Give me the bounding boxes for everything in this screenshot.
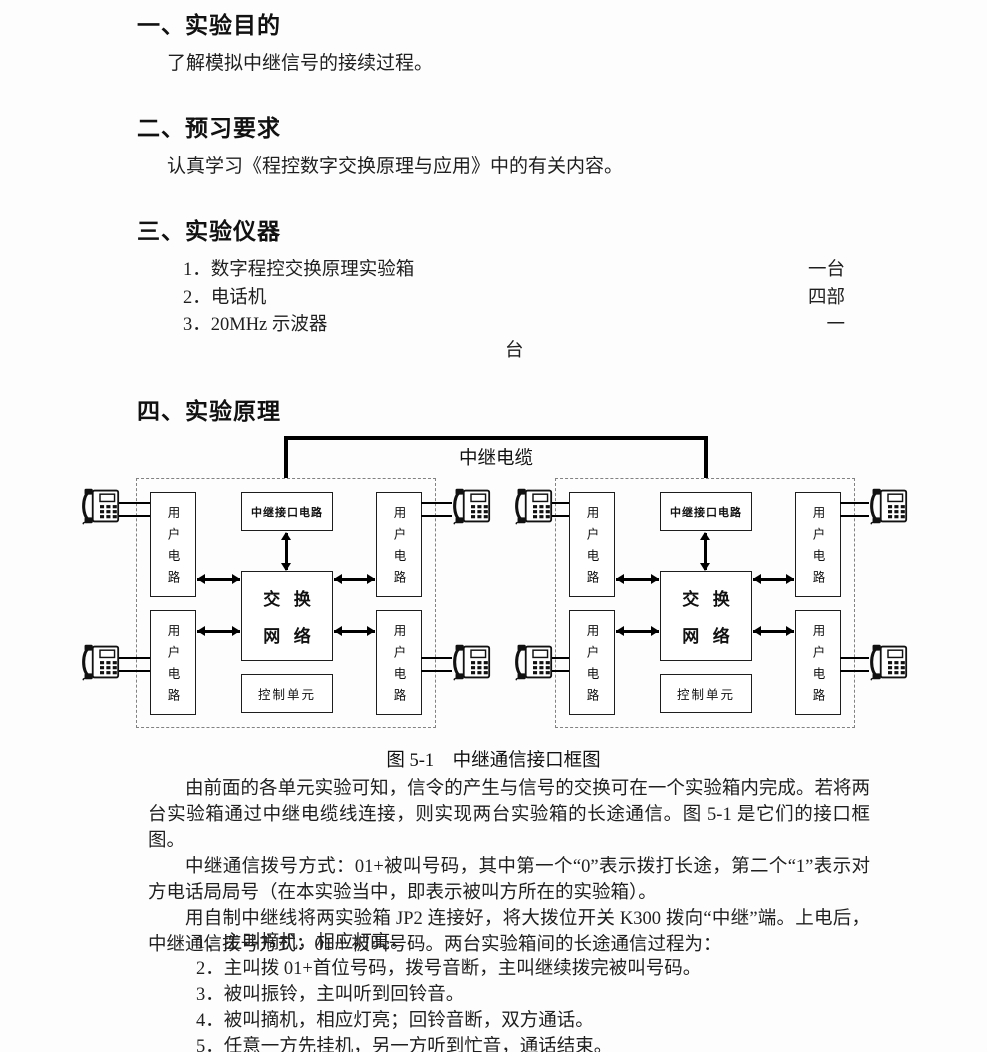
- user-circuit-label: 用户电路: [809, 506, 828, 592]
- instrument-qty: 一台: [808, 255, 845, 281]
- subscriber-line: [421, 657, 452, 659]
- trunk-cable-line: [284, 436, 708, 440]
- subscriber-line: [119, 657, 150, 659]
- user-circuit-label: 用户电路: [390, 624, 409, 710]
- trunk-interface-box: 中继接口电路: [660, 492, 752, 531]
- user-circuit-label: 用户电路: [583, 624, 602, 710]
- subscriber-line: [119, 670, 150, 672]
- user-circuit-box: 用户电路: [150, 492, 196, 597]
- switch-network-label-line1: 交换: [682, 585, 743, 610]
- instrument-qty-overflow: 台: [505, 336, 524, 362]
- subscriber-line: [840, 515, 869, 517]
- double-arrow-icon: [285, 533, 288, 570]
- double-arrow-icon: [334, 630, 375, 633]
- user-circuit-label: 用户电路: [809, 624, 828, 710]
- trunk-interface-label: 中继接口电路: [251, 504, 323, 520]
- user-circuit-box: 用户电路: [376, 610, 422, 715]
- exchange-box-left: 用户电路 用户电路 用户电路 用户电路 中继接口电路 交换 网络 控制单元: [136, 478, 436, 728]
- step-item: 2．主叫拨 01+首位号码，拨号音断，主叫继续拨完被叫号码。: [196, 956, 701, 982]
- section-heading-preview: 二、预习要求: [137, 109, 281, 143]
- telephone-icon: [513, 643, 553, 681]
- user-circuit-label: 用户电路: [583, 506, 602, 592]
- preview-text: 认真学习《程控数字交换原理与应用》中的有关内容。: [167, 151, 623, 178]
- trunk-interface-label: 中继接口电路: [670, 504, 742, 520]
- switch-network-label-line2: 网络: [263, 622, 324, 647]
- section-heading-purpose: 一、实验目的: [137, 6, 281, 40]
- user-circuit-label: 用户电路: [390, 506, 409, 592]
- instrument-qty: 四部: [808, 283, 845, 309]
- double-arrow-icon: [197, 578, 240, 581]
- step-item: 4．被叫摘机，相应灯亮；回铃音断，双方通话。: [196, 1008, 701, 1034]
- document-page: 一、实验目的 了解模拟中继信号的接续过程。 二、预习要求 认真学习《程控数字交换…: [0, 0, 987, 1052]
- user-circuit-box: 用户电路: [569, 492, 615, 597]
- trunk-interface-block-diagram: 中继电缆 用户电路 用户电路 用户电路 用户电路 中继接口电路 交换 网络 控制…: [0, 430, 987, 735]
- user-circuit-box: 用户电路: [150, 610, 196, 715]
- subscriber-line: [119, 515, 150, 517]
- section-heading-principle: 四、实验原理: [137, 392, 281, 426]
- switch-network-label-line2: 网络: [682, 622, 743, 647]
- double-arrow-icon: [753, 630, 794, 633]
- user-circuit-box: 用户电路: [795, 492, 841, 597]
- step-item: 1．主叫摘机，相应灯亮。: [196, 930, 701, 956]
- step-item: 3．被叫振铃，主叫听到回铃音。: [196, 982, 701, 1008]
- trunk-interface-box: 中继接口电路: [241, 492, 333, 531]
- subscriber-line: [552, 657, 569, 659]
- trunk-cable-label: 中继电缆: [284, 444, 708, 470]
- subscriber-line: [552, 515, 569, 517]
- subscriber-line: [119, 502, 150, 504]
- double-arrow-icon: [197, 630, 240, 633]
- control-unit-label: 控制单元: [677, 684, 735, 703]
- control-unit-box: 控制单元: [660, 674, 752, 713]
- user-circuit-box: 用户电路: [795, 610, 841, 715]
- telephone-icon: [80, 643, 120, 681]
- telephone-icon: [80, 487, 120, 525]
- instrument-label: 2．电话机: [183, 283, 266, 309]
- principle-paragraph-1: 由前面的各单元实验可知，信令的产生与信号的交换可在一个实验箱内完成。若将两台实验…: [148, 776, 870, 854]
- subscriber-line: [552, 502, 569, 504]
- principle-paragraph-2: 中继通信拨号方式：01+被叫号码，其中第一个“0”表示拨打长途，第二个“1”表示…: [148, 854, 870, 906]
- section-heading-instruments: 三、实验仪器: [137, 212, 281, 246]
- user-circuit-label: 用户电路: [164, 624, 183, 710]
- double-arrow-icon: [753, 578, 794, 581]
- user-circuit-box: 用户电路: [569, 610, 615, 715]
- control-unit-label: 控制单元: [258, 684, 316, 703]
- double-arrow-icon: [334, 578, 375, 581]
- subscriber-line: [421, 515, 452, 517]
- switch-network-box: 交换 网络: [660, 571, 752, 661]
- subscriber-line: [840, 657, 869, 659]
- telephone-icon: [451, 487, 491, 525]
- instrument-qty: 一: [826, 310, 845, 336]
- instrument-row: 3．20MHz 示波器 一: [183, 310, 845, 336]
- exchange-box-right: 用户电路 用户电路 用户电路 用户电路 中继接口电路 交换 网络 控制单元: [555, 478, 855, 728]
- subscriber-line: [421, 670, 452, 672]
- step-item: 5．任意一方先挂机，另一方听到忙音，通话结束。: [196, 1034, 701, 1052]
- user-circuit-label: 用户电路: [164, 506, 183, 592]
- double-arrow-icon: [616, 578, 659, 581]
- switch-network-box: 交换 网络: [241, 571, 333, 661]
- user-circuit-box: 用户电路: [376, 492, 422, 597]
- subscriber-line: [552, 670, 569, 672]
- telephone-icon: [513, 487, 553, 525]
- double-arrow-icon: [704, 533, 707, 570]
- telephone-icon: [868, 487, 908, 525]
- switch-network-label-line1: 交换: [263, 585, 324, 610]
- purpose-text: 了解模拟中继信号的接续过程。: [167, 48, 433, 75]
- instrument-label: 1．数字程控交换原理实验箱: [183, 255, 414, 281]
- telephone-icon: [451, 643, 491, 681]
- figure-caption: 图 5-1 中继通信接口框图: [0, 746, 987, 772]
- instrument-label: 3．20MHz 示波器: [183, 310, 327, 336]
- subscriber-line: [840, 502, 869, 504]
- procedure-steps: 1．主叫摘机，相应灯亮。 2．主叫拨 01+首位号码，拨号音断，主叫继续拨完被叫…: [196, 930, 701, 1052]
- subscriber-line: [840, 670, 869, 672]
- instrument-row: 2．电话机 四部: [183, 283, 845, 309]
- telephone-icon: [868, 643, 908, 681]
- control-unit-box: 控制单元: [241, 674, 333, 713]
- instrument-row: 1．数字程控交换原理实验箱 一台: [183, 255, 845, 281]
- double-arrow-icon: [616, 630, 659, 633]
- subscriber-line: [421, 502, 452, 504]
